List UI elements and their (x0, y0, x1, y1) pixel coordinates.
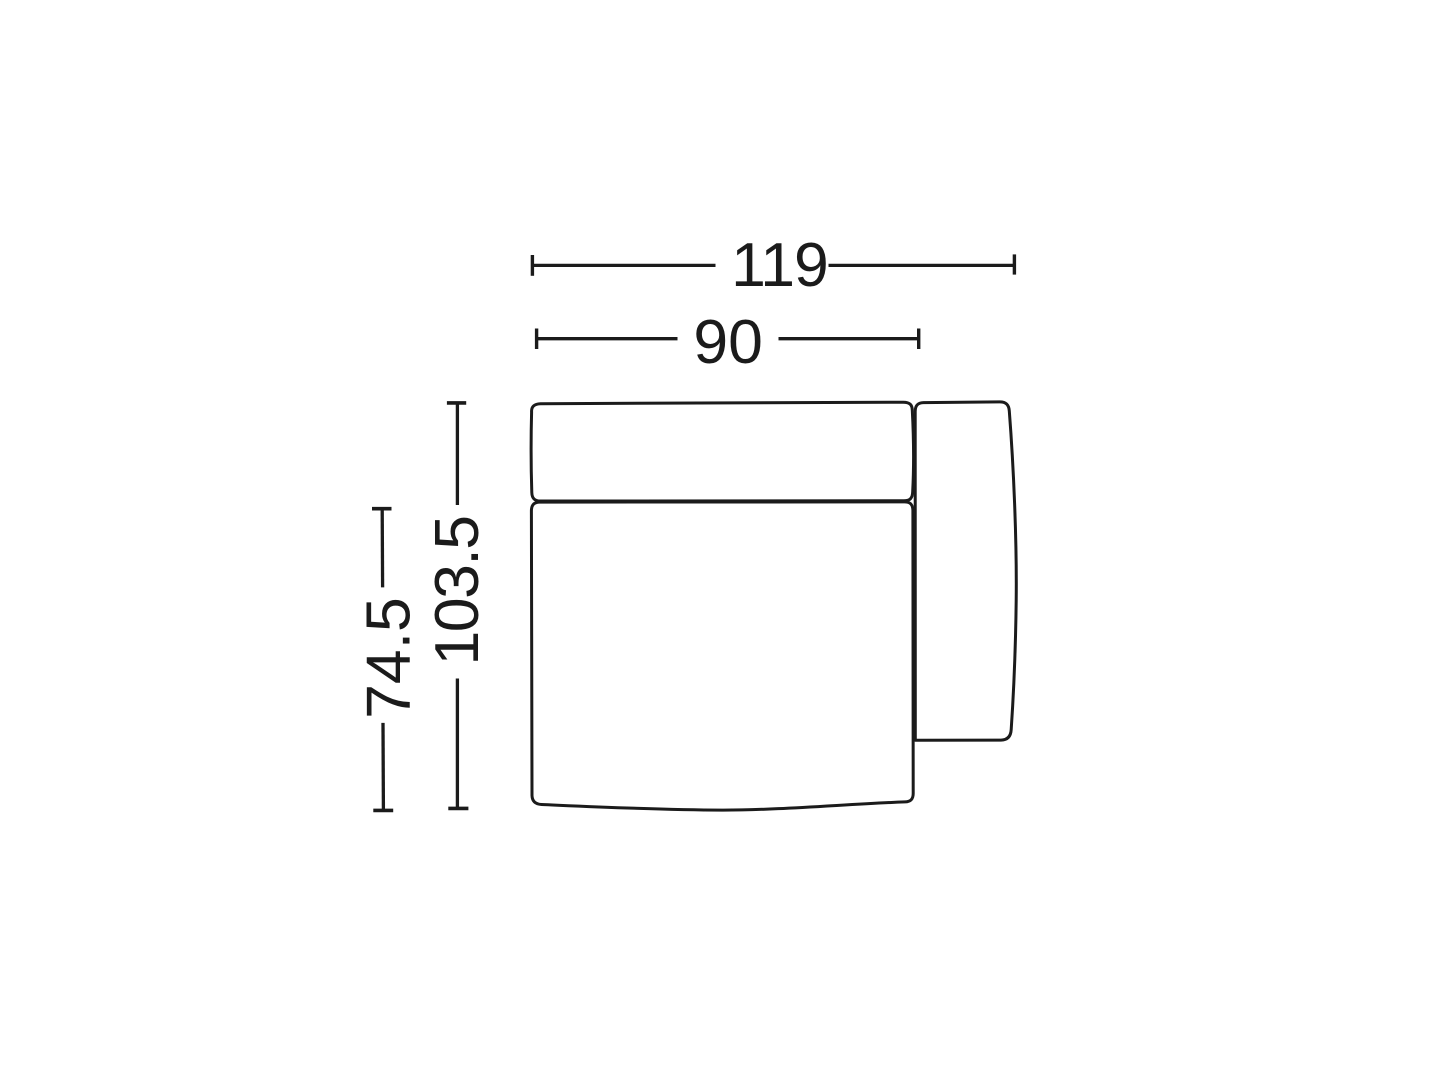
svg-text:119: 119 (731, 230, 828, 300)
svg-text:90: 90 (693, 307, 763, 377)
svg-text:103.5: 103.5 (422, 517, 492, 666)
svg-text:74.5: 74.5 (353, 597, 423, 719)
